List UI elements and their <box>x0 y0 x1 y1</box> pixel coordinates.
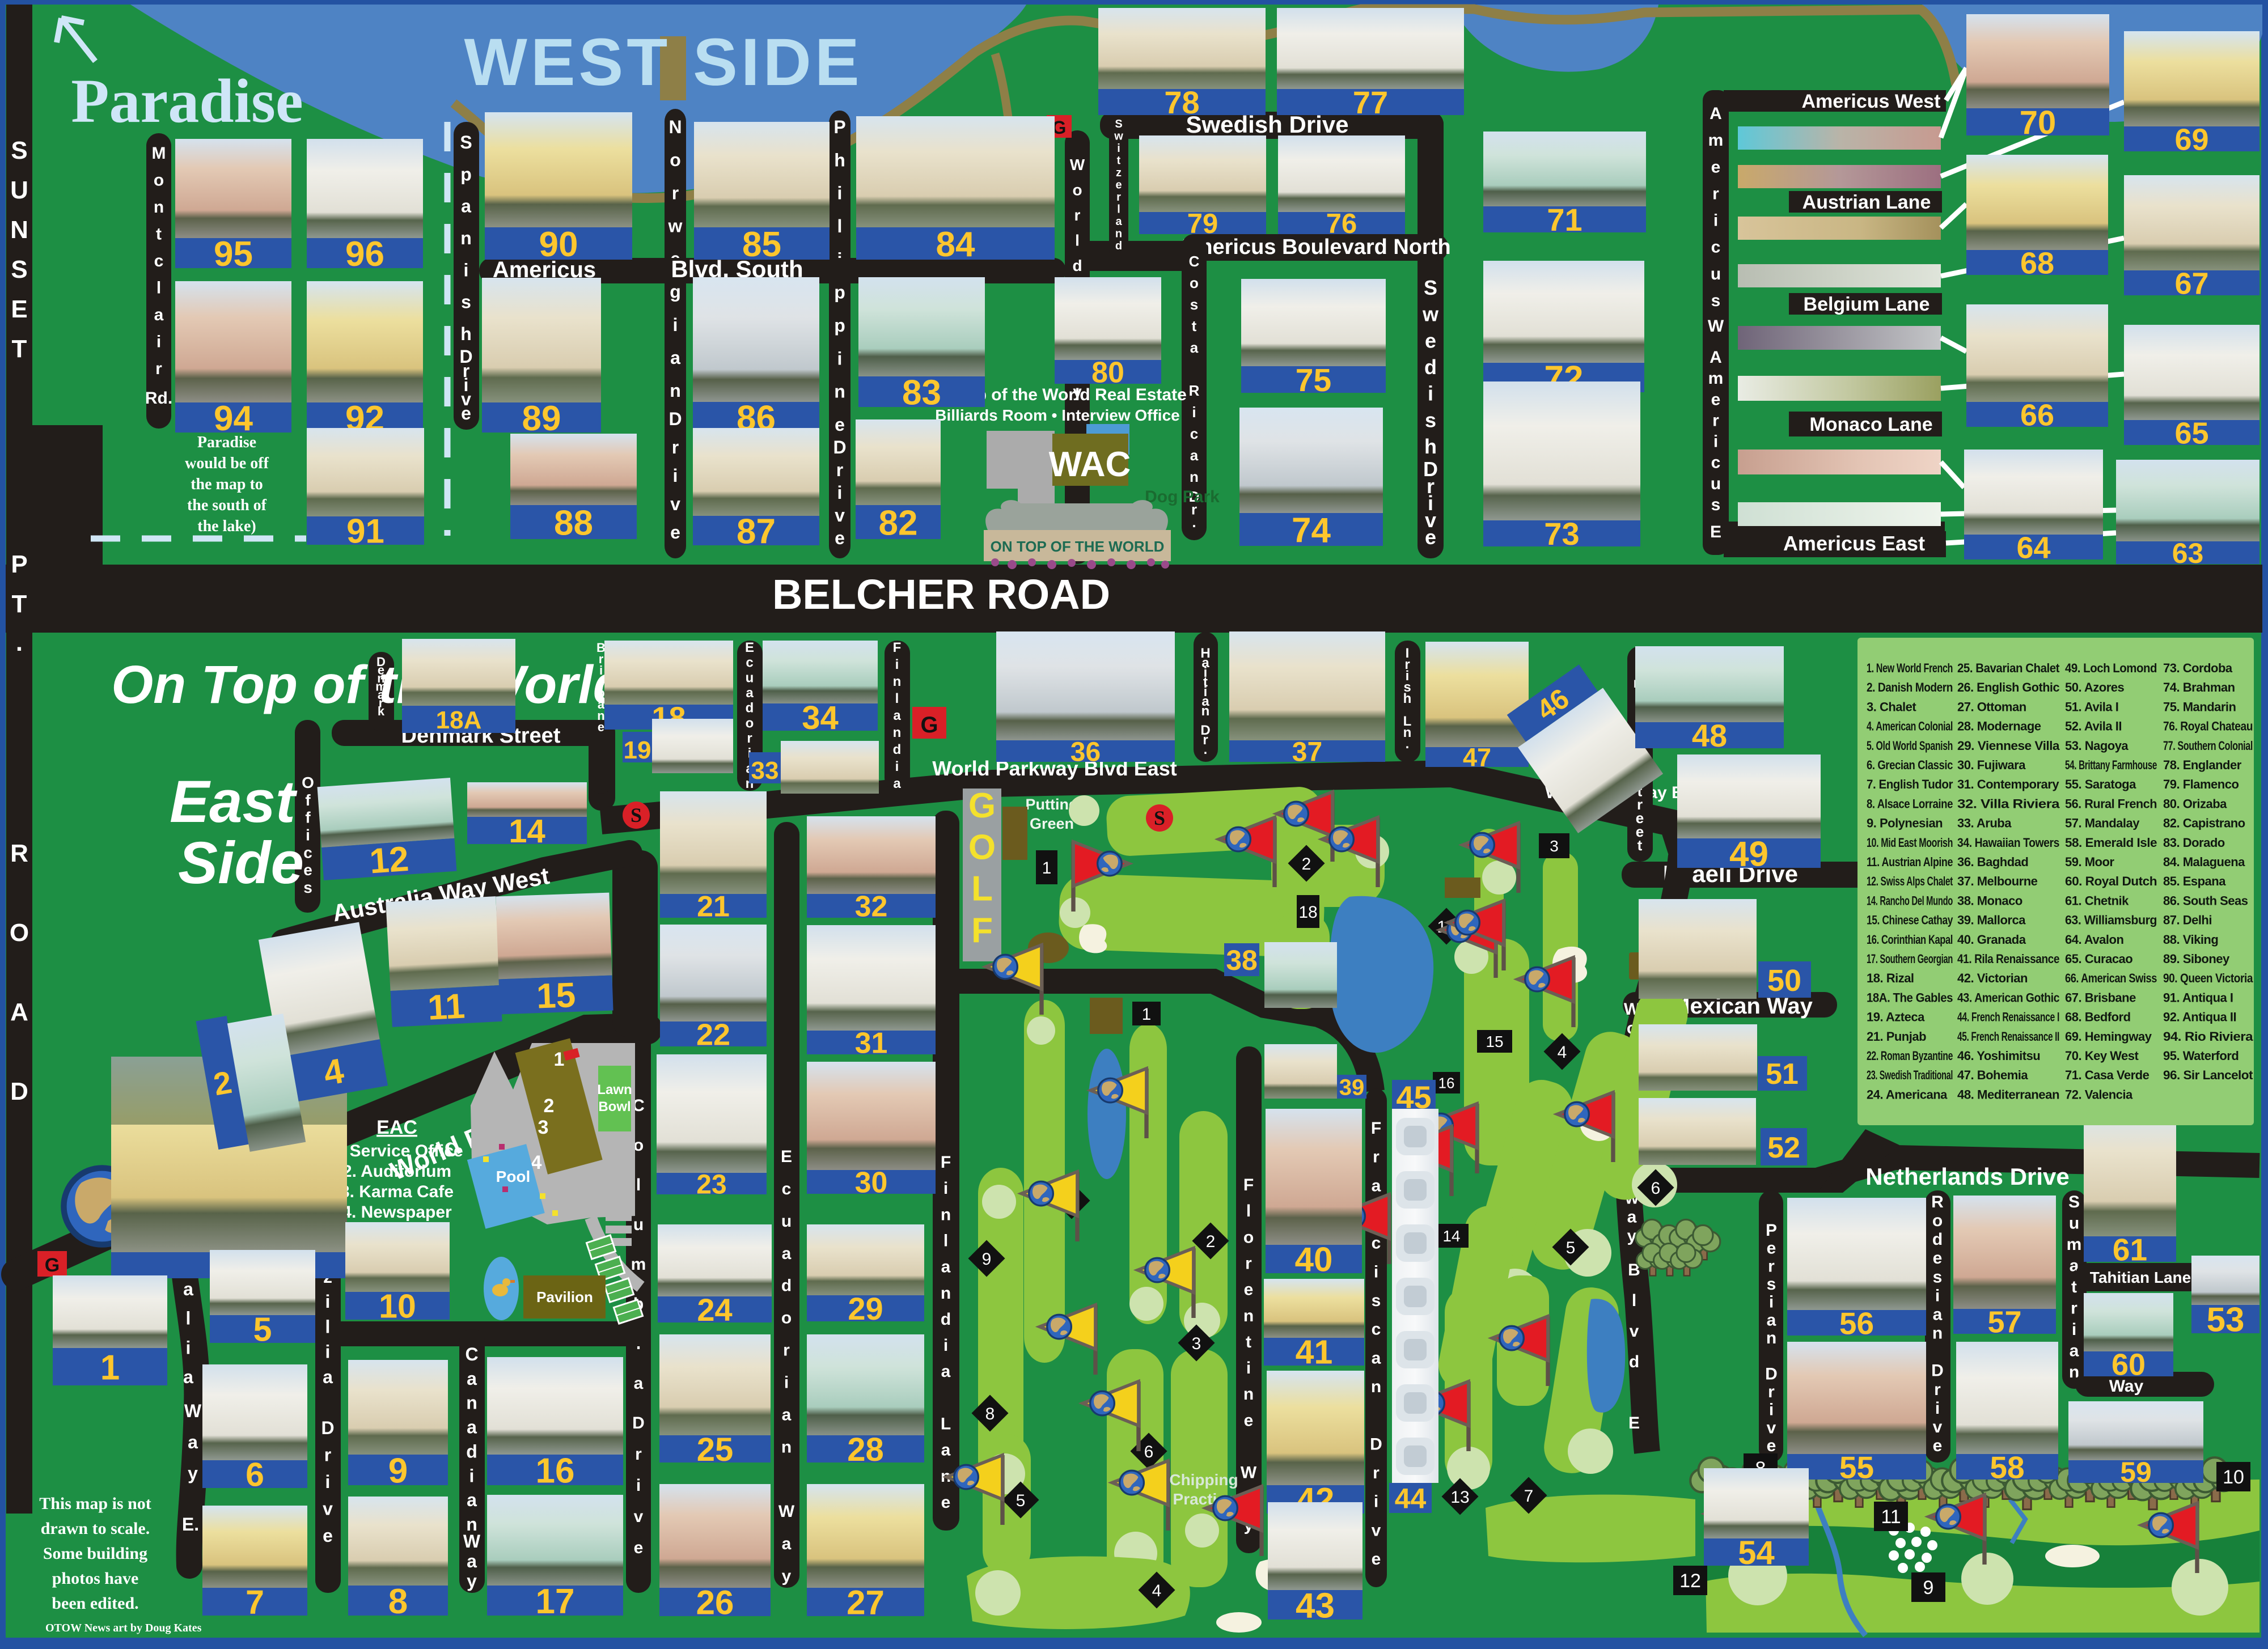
svg-text:c: c <box>1372 1234 1381 1253</box>
svg-text:A: A <box>1710 348 1722 367</box>
svg-text:d: d <box>941 1310 951 1329</box>
svg-text:y: y <box>188 1463 198 1483</box>
svg-text:82: 82 <box>879 503 918 542</box>
svg-text:S: S <box>2068 1193 2080 1211</box>
svg-text:e: e <box>670 522 680 542</box>
svg-text:c: c <box>1711 453 1721 472</box>
svg-text:drawn to scale.: drawn to scale. <box>41 1519 150 1538</box>
svg-text:67. Brisbane: 67. Brisbane <box>2065 990 2136 1004</box>
svg-text:s: s <box>1425 408 1436 431</box>
svg-text:s: s <box>1372 1291 1381 1310</box>
svg-text:e: e <box>1711 158 1721 176</box>
svg-text:2. Danish Modern: 2. Danish Modern <box>1867 680 1953 694</box>
svg-text:n: n <box>834 381 845 402</box>
svg-text:i: i <box>156 333 161 351</box>
svg-text:6: 6 <box>1651 1179 1661 1198</box>
svg-text:a: a <box>467 1417 477 1438</box>
svg-text:i: i <box>1935 1286 1940 1305</box>
svg-text:R: R <box>10 840 28 867</box>
svg-text:i: i <box>469 1465 475 1486</box>
svg-text:11: 11 <box>1881 1506 1901 1528</box>
svg-text:w: w <box>1114 130 1123 143</box>
svg-text:EAC: EAC <box>376 1117 417 1138</box>
svg-text:77: 77 <box>1353 84 1388 120</box>
svg-text:5: 5 <box>1016 1491 1026 1510</box>
svg-text:a: a <box>467 1551 477 1571</box>
svg-text:l: l <box>943 1231 948 1250</box>
svg-text:33. Aruba: 33. Aruba <box>1957 816 2012 830</box>
svg-text:69: 69 <box>2174 122 2208 156</box>
svg-text:D: D <box>1931 1362 1944 1380</box>
svg-text:6: 6 <box>1144 1443 1154 1461</box>
svg-text:A: A <box>10 998 28 1026</box>
svg-text:OTOW News art by Doug Kates: OTOW News art by Doug Kates <box>45 1622 202 1634</box>
svg-text:i: i <box>464 260 469 280</box>
svg-text:76. Royal Chateau: 76. Royal Chateau <box>2163 719 2253 734</box>
svg-text:u: u <box>1711 474 1721 493</box>
svg-text:57: 57 <box>1987 1305 2021 1339</box>
svg-text:6. Grecian Classic: 6. Grecian Classic <box>1867 758 1953 772</box>
svg-text:Some building: Some building <box>43 1544 147 1563</box>
svg-text:3. Chalet: 3. Chalet <box>1867 700 1916 714</box>
svg-text:8: 8 <box>985 1405 995 1423</box>
svg-text:o: o <box>1190 274 1199 291</box>
svg-text:27: 27 <box>847 1584 885 1622</box>
svg-text:a: a <box>1933 1305 1943 1324</box>
svg-text:f: f <box>305 809 311 826</box>
svg-text:i: i <box>1769 1401 1774 1419</box>
svg-text:26: 26 <box>696 1584 734 1622</box>
svg-text:O: O <box>302 774 314 791</box>
svg-text:D: D <box>833 437 846 457</box>
svg-text:66. American Swiss: 66. American Swiss <box>2065 971 2157 985</box>
svg-text:BELCHER ROAD: BELCHER ROAD <box>772 571 1110 618</box>
svg-text:u: u <box>746 670 754 685</box>
svg-text:C: C <box>465 1344 478 1364</box>
svg-text:Bowl: Bowl <box>598 1099 631 1114</box>
svg-text:n: n <box>893 674 902 689</box>
svg-text:i: i <box>1713 211 1718 230</box>
svg-text:E: E <box>781 1147 792 1166</box>
svg-text:42. Victorian: 42. Victorian <box>1957 971 2028 985</box>
svg-text:2. Auditorium: 2. Auditorium <box>342 1162 451 1181</box>
svg-text:37. Melbourne: 37. Melbourne <box>1957 874 2038 888</box>
svg-text:11: 11 <box>427 987 466 1028</box>
svg-text:22. Roman Byzantine: 22. Roman Byzantine <box>1867 1049 1953 1063</box>
svg-text:84. Malaguena: 84. Malaguena <box>2163 855 2245 869</box>
svg-text:3: 3 <box>1192 1334 1201 1353</box>
svg-text:n: n <box>460 228 472 248</box>
svg-text:U: U <box>10 176 28 204</box>
svg-text:22: 22 <box>696 1018 730 1052</box>
svg-text:50: 50 <box>1767 964 1801 998</box>
svg-text:72. Valencia: 72. Valencia <box>2065 1087 2133 1101</box>
svg-text:5: 5 <box>253 1311 272 1349</box>
svg-text:e: e <box>303 861 312 879</box>
svg-text:D: D <box>1370 1435 1382 1453</box>
svg-text:W: W <box>1070 156 1085 173</box>
svg-text:25: 25 <box>697 1431 734 1468</box>
svg-text:Chipping: Chipping <box>1169 1471 1238 1489</box>
svg-text:79: 79 <box>1187 209 1218 239</box>
svg-text:i: i <box>943 1336 948 1355</box>
svg-text:E: E <box>11 295 27 323</box>
svg-text:F: F <box>893 640 902 655</box>
svg-text:43. American Gothic: 43. American Gothic <box>1957 990 2059 1004</box>
svg-text:23: 23 <box>696 1169 726 1199</box>
svg-text:w: w <box>1422 303 1439 326</box>
svg-text:16: 16 <box>1438 1074 1455 1091</box>
svg-text:i: i <box>837 348 843 368</box>
svg-text:c: c <box>782 1180 792 1198</box>
svg-text:S: S <box>11 137 27 164</box>
svg-text:67: 67 <box>2174 266 2208 300</box>
svg-text:58: 58 <box>1990 1449 2024 1485</box>
svg-text:o: o <box>781 1309 792 1328</box>
svg-text:52: 52 <box>1767 1131 1800 1164</box>
svg-text:78: 78 <box>1164 84 1199 120</box>
svg-text:23. Swedish Traditional: 23. Swedish Traditional <box>1867 1068 1953 1082</box>
svg-text:16: 16 <box>536 1451 575 1490</box>
svg-text:d: d <box>893 742 902 757</box>
svg-text:i: i <box>837 183 843 204</box>
svg-text:G: G <box>45 1254 60 1276</box>
svg-text:l: l <box>1632 1291 1636 1310</box>
svg-text:d: d <box>466 1441 477 1461</box>
svg-text:D: D <box>1765 1364 1778 1383</box>
svg-text:r: r <box>1373 1464 1380 1482</box>
svg-text:87. Delhi: 87. Delhi <box>2163 913 2212 927</box>
svg-text:85. Espana: 85. Espana <box>2163 874 2226 888</box>
svg-text:i: i <box>895 759 899 774</box>
svg-text:i: i <box>186 1337 191 1358</box>
svg-text:c: c <box>154 252 164 270</box>
svg-text:s: s <box>1767 1275 1776 1294</box>
svg-text:a: a <box>782 1534 792 1553</box>
svg-text:c: c <box>746 655 753 671</box>
svg-text:a: a <box>467 1490 477 1510</box>
svg-text:T: T <box>12 590 27 618</box>
svg-text:2: 2 <box>1302 855 1311 874</box>
svg-text:38: 38 <box>1226 944 1258 976</box>
svg-text:F: F <box>941 1153 951 1172</box>
svg-text:49. Loch Lomond: 49. Loch Lomond <box>2065 661 2157 675</box>
svg-text:Monaco Lane: Monaco Lane <box>1809 414 1932 435</box>
svg-text:A: A <box>1710 104 1722 123</box>
svg-text:80: 80 <box>1091 357 1124 389</box>
svg-text:c: c <box>303 843 312 861</box>
svg-text:S: S <box>631 804 642 826</box>
svg-text:53. Nagoya: 53. Nagoya <box>2065 739 2129 753</box>
svg-text:i: i <box>1374 1262 1378 1281</box>
svg-text:u: u <box>781 1212 792 1231</box>
svg-text:36. Baghdad: 36. Baghdad <box>1957 855 2028 869</box>
svg-text:65: 65 <box>2174 416 2208 450</box>
svg-text:Dog Park: Dog Park <box>1145 488 1220 506</box>
svg-text:7: 7 <box>246 1584 264 1621</box>
svg-text:a: a <box>1190 447 1199 464</box>
svg-text:60: 60 <box>2112 1347 2146 1381</box>
svg-text:d: d <box>746 701 754 716</box>
svg-text:n: n <box>781 1438 792 1456</box>
svg-text:East: East <box>170 769 298 835</box>
svg-text:v: v <box>1630 1322 1639 1341</box>
svg-text:r: r <box>324 1445 331 1465</box>
svg-text:r: r <box>672 437 679 457</box>
svg-text:9: 9 <box>1923 1577 1934 1599</box>
svg-text:17: 17 <box>536 1582 575 1621</box>
svg-text:Lawn: Lawn <box>597 1082 632 1097</box>
svg-text:28. Modernage: 28. Modernage <box>1957 719 2041 734</box>
svg-text:o: o <box>1932 1211 1943 1230</box>
svg-text:.: . <box>1406 736 1410 752</box>
svg-text:a: a <box>323 1367 333 1387</box>
svg-text:18: 18 <box>1298 903 1317 922</box>
svg-text:7: 7 <box>1524 1487 1534 1506</box>
svg-text:i: i <box>784 1373 789 1392</box>
svg-text:86. South Seas: 86. South Seas <box>2163 893 2248 908</box>
svg-text:been edited.: been edited. <box>52 1594 138 1613</box>
svg-text:n: n <box>1115 228 1122 240</box>
svg-text:a: a <box>188 1432 198 1452</box>
svg-text:18. Rizal: 18. Rizal <box>1867 971 1914 985</box>
svg-text:v: v <box>323 1499 333 1519</box>
svg-text:L: L <box>941 1415 951 1434</box>
svg-text:n: n <box>941 1205 951 1224</box>
svg-text:9: 9 <box>388 1451 408 1490</box>
svg-text:46. Yoshimitsu: 46. Yoshimitsu <box>1957 1049 2040 1063</box>
svg-text:11. Austrian Alpine: 11. Austrian Alpine <box>1867 855 1953 869</box>
svg-text:l: l <box>636 1176 641 1194</box>
svg-text:79. Flamenco: 79. Flamenco <box>2163 777 2239 791</box>
svg-text:4. Newspaper: 4. Newspaper <box>342 1203 452 1222</box>
svg-text:34: 34 <box>802 700 839 736</box>
svg-text:i: i <box>1192 404 1196 421</box>
svg-text:S: S <box>1424 276 1437 299</box>
svg-text:31. Contemporary: 31. Contemporary <box>1957 777 2059 791</box>
svg-text:Americus West: Americus West <box>1801 91 1940 112</box>
svg-text:32: 32 <box>855 891 888 923</box>
svg-text:G: G <box>968 786 996 825</box>
svg-text:a: a <box>941 1441 951 1460</box>
svg-text:61. Chetnik: 61. Chetnik <box>2065 893 2129 908</box>
svg-text:a: a <box>1115 215 1122 228</box>
svg-text:18A: 18A <box>436 706 482 734</box>
svg-text:e: e <box>323 1525 333 1546</box>
svg-text:17. Southern Georgian: 17. Southern Georgian <box>1867 952 1953 966</box>
svg-text:Tahitian Lane: Tahitian Lane <box>2090 1269 2191 1286</box>
svg-text:a: a <box>1372 1349 1381 1367</box>
svg-text:r: r <box>1074 206 1081 224</box>
svg-text:a: a <box>782 1405 792 1424</box>
svg-text:a: a <box>941 1258 951 1277</box>
svg-text:f: f <box>305 791 311 809</box>
svg-text:65. Curacao: 65. Curacao <box>2065 952 2132 966</box>
svg-text:27. Ottoman: 27. Ottoman <box>1957 700 2026 714</box>
svg-text:58. Emerald Isle: 58. Emerald Isle <box>2065 836 2157 850</box>
svg-text:a: a <box>782 1244 792 1263</box>
svg-text:would be off: would be off <box>185 455 269 472</box>
svg-text:a: a <box>670 347 680 368</box>
svg-text:d: d <box>1072 257 1082 274</box>
svg-text:m: m <box>2067 1235 2082 1254</box>
svg-text:54. Brittany Farmhouse: 54. Brittany Farmhouse <box>2065 758 2157 772</box>
svg-text:90. Queen Victoria: 90. Queen Victoria <box>2163 971 2253 985</box>
svg-text:89. Siboney: 89. Siboney <box>2163 952 2230 966</box>
svg-text:3: 3 <box>1550 837 1559 855</box>
svg-text:v: v <box>1767 1418 1776 1437</box>
svg-text:a: a <box>2070 1342 2079 1360</box>
svg-text:5. Old World Spanish: 5. Old World Spanish <box>1867 739 1953 753</box>
svg-text:D: D <box>668 409 682 429</box>
svg-text:85: 85 <box>742 225 781 264</box>
svg-text:h: h <box>460 324 472 344</box>
svg-text:48. Mediterranean: 48. Mediterranean <box>1957 1087 2059 1101</box>
svg-text:t: t <box>1246 1333 1251 1351</box>
svg-text:t: t <box>1637 837 1643 854</box>
svg-text:73: 73 <box>1544 516 1579 552</box>
svg-text:o: o <box>1072 181 1082 198</box>
svg-text:68. Bedford: 68. Bedford <box>2065 1010 2131 1024</box>
svg-text:e: e <box>1711 390 1721 409</box>
svg-text:r: r <box>672 183 679 203</box>
svg-text:50. Azores: 50. Azores <box>2065 680 2125 694</box>
svg-text:o: o <box>1243 1228 1254 1247</box>
svg-text:h: h <box>1424 435 1437 458</box>
svg-text:e: e <box>1244 1281 1254 1299</box>
svg-text:l: l <box>325 1316 331 1337</box>
svg-text:73. Cordoba: 73. Cordoba <box>2163 661 2233 675</box>
svg-text:66: 66 <box>2020 398 2054 432</box>
svg-text:18A. The Gables: 18A. The Gables <box>1867 990 1953 1004</box>
svg-text:e: e <box>598 720 604 734</box>
svg-text:r: r <box>1373 1148 1380 1167</box>
svg-text:19. Azteca: 19. Azteca <box>1867 1010 1925 1024</box>
svg-text:33: 33 <box>751 757 779 785</box>
svg-text:24. Americana: 24. Americana <box>1867 1087 1948 1101</box>
svg-text:40: 40 <box>1295 1241 1333 1279</box>
svg-text:i: i <box>1117 142 1120 155</box>
svg-text:c: c <box>1190 425 1198 442</box>
svg-text:l: l <box>895 691 899 706</box>
svg-text:6: 6 <box>246 1456 264 1494</box>
svg-text:i: i <box>837 482 843 503</box>
svg-text:96: 96 <box>345 235 384 274</box>
svg-text:63: 63 <box>2172 537 2204 569</box>
svg-text:52. Avila II: 52. Avila II <box>2065 719 2122 734</box>
svg-text:e: e <box>1425 525 1436 549</box>
svg-text:15. Chinese Cathay: 15. Chinese Cathay <box>1867 913 1953 927</box>
svg-text:E: E <box>1710 523 1721 541</box>
svg-text:r: r <box>1245 1254 1252 1273</box>
svg-text:E.: E. <box>182 1514 199 1534</box>
svg-text:1. Service Office: 1. Service Office <box>331 1142 463 1160</box>
svg-text:v: v <box>1372 1521 1381 1540</box>
svg-text:photos have: photos have <box>52 1569 139 1588</box>
svg-text:Swedish Drive: Swedish Drive <box>1186 111 1348 138</box>
svg-text:89: 89 <box>522 399 561 438</box>
svg-text:3. Karma Cafe: 3. Karma Cafe <box>340 1182 454 1201</box>
svg-text:i: i <box>673 465 678 486</box>
svg-text:41. Rila Renaissance: 41. Rila Renaissance <box>1957 952 2059 966</box>
svg-text:r: r <box>1768 1257 1775 1275</box>
svg-text:45. French Renaissance II: 45. French Renaissance II <box>1957 1029 2059 1044</box>
svg-text:o: o <box>746 715 754 731</box>
svg-text:78. Englander: 78. Englander <box>2163 758 2242 772</box>
svg-text:n: n <box>1243 1385 1254 1404</box>
svg-text:i: i <box>2072 1320 2076 1339</box>
svg-text:70. Key West: 70. Key West <box>2065 1049 2139 1063</box>
svg-text:O: O <box>968 828 996 867</box>
svg-text:56: 56 <box>1839 1305 1874 1341</box>
svg-text:i: i <box>636 1476 641 1495</box>
svg-text:a: a <box>893 776 901 791</box>
svg-text:54: 54 <box>1738 1534 1775 1571</box>
svg-text:the lake): the lake) <box>197 518 256 535</box>
svg-text:96. Sir Lancelot: 96. Sir Lancelot <box>2163 1068 2253 1082</box>
svg-text:r: r <box>747 731 752 746</box>
svg-text:10: 10 <box>2223 1466 2244 1488</box>
svg-text:16. Corinthian Kapal: 16. Corinthian Kapal <box>1867 932 1953 947</box>
svg-text:D: D <box>10 1078 28 1105</box>
svg-text:59: 59 <box>2120 1456 2152 1488</box>
svg-text:Billiards Room • Interview Off: Billiards Room • Interview Office <box>935 406 1179 424</box>
svg-text:n: n <box>1932 1324 1943 1343</box>
svg-text:12: 12 <box>369 840 411 881</box>
svg-text:48: 48 <box>1692 718 1727 753</box>
svg-text:W: W <box>778 1502 795 1521</box>
svg-text:r: r <box>1934 1380 1941 1399</box>
svg-text:s: s <box>303 879 312 896</box>
svg-text:15: 15 <box>1486 1033 1503 1050</box>
svg-text:5: 5 <box>1566 1239 1576 1257</box>
svg-text:80. Orizaba: 80. Orizaba <box>2163 796 2227 811</box>
svg-text:4. American Colonial: 4. American Colonial <box>1867 719 1953 734</box>
svg-text:P: P <box>11 550 27 578</box>
svg-text:Americus East: Americus East <box>1783 532 1925 555</box>
svg-text:d: d <box>1629 1353 1639 1371</box>
svg-text:30: 30 <box>855 1167 888 1199</box>
svg-text:t: t <box>156 225 162 244</box>
svg-text:i: i <box>673 315 678 335</box>
svg-text:Rd.: Rd. <box>145 389 172 408</box>
svg-text:N: N <box>668 117 682 137</box>
svg-text:W: W <box>1708 317 1724 336</box>
svg-text:o: o <box>154 171 164 190</box>
svg-text:64. Avalon: 64. Avalon <box>2065 932 2123 947</box>
svg-text:10: 10 <box>379 1288 416 1325</box>
svg-text:34. Hawaiian Towers: 34. Hawaiian Towers <box>1957 836 2059 850</box>
svg-text:i: i <box>325 1342 331 1362</box>
svg-text:e: e <box>1115 179 1122 192</box>
svg-text:68: 68 <box>2020 246 2054 280</box>
svg-text:S: S <box>1115 118 1122 130</box>
svg-text:u: u <box>1711 265 1721 283</box>
svg-text:63. Williamsburg: 63. Williamsburg <box>2065 913 2157 927</box>
svg-text:y: y <box>782 1567 792 1586</box>
svg-text:12: 12 <box>1679 1570 1701 1592</box>
svg-text:25. Bavarian Chalet: 25. Bavarian Chalet <box>1957 661 2060 675</box>
svg-text:l: l <box>1075 231 1080 249</box>
svg-text:n: n <box>893 725 902 740</box>
svg-text:3: 3 <box>538 1117 549 1138</box>
svg-text:n: n <box>154 198 164 217</box>
svg-text:n: n <box>1243 1307 1254 1325</box>
svg-text:v: v <box>634 1507 644 1526</box>
svg-text:a: a <box>183 1367 193 1387</box>
svg-text:Green: Green <box>1030 815 1074 832</box>
svg-text:On Top of the World: On Top of the World <box>111 655 627 715</box>
